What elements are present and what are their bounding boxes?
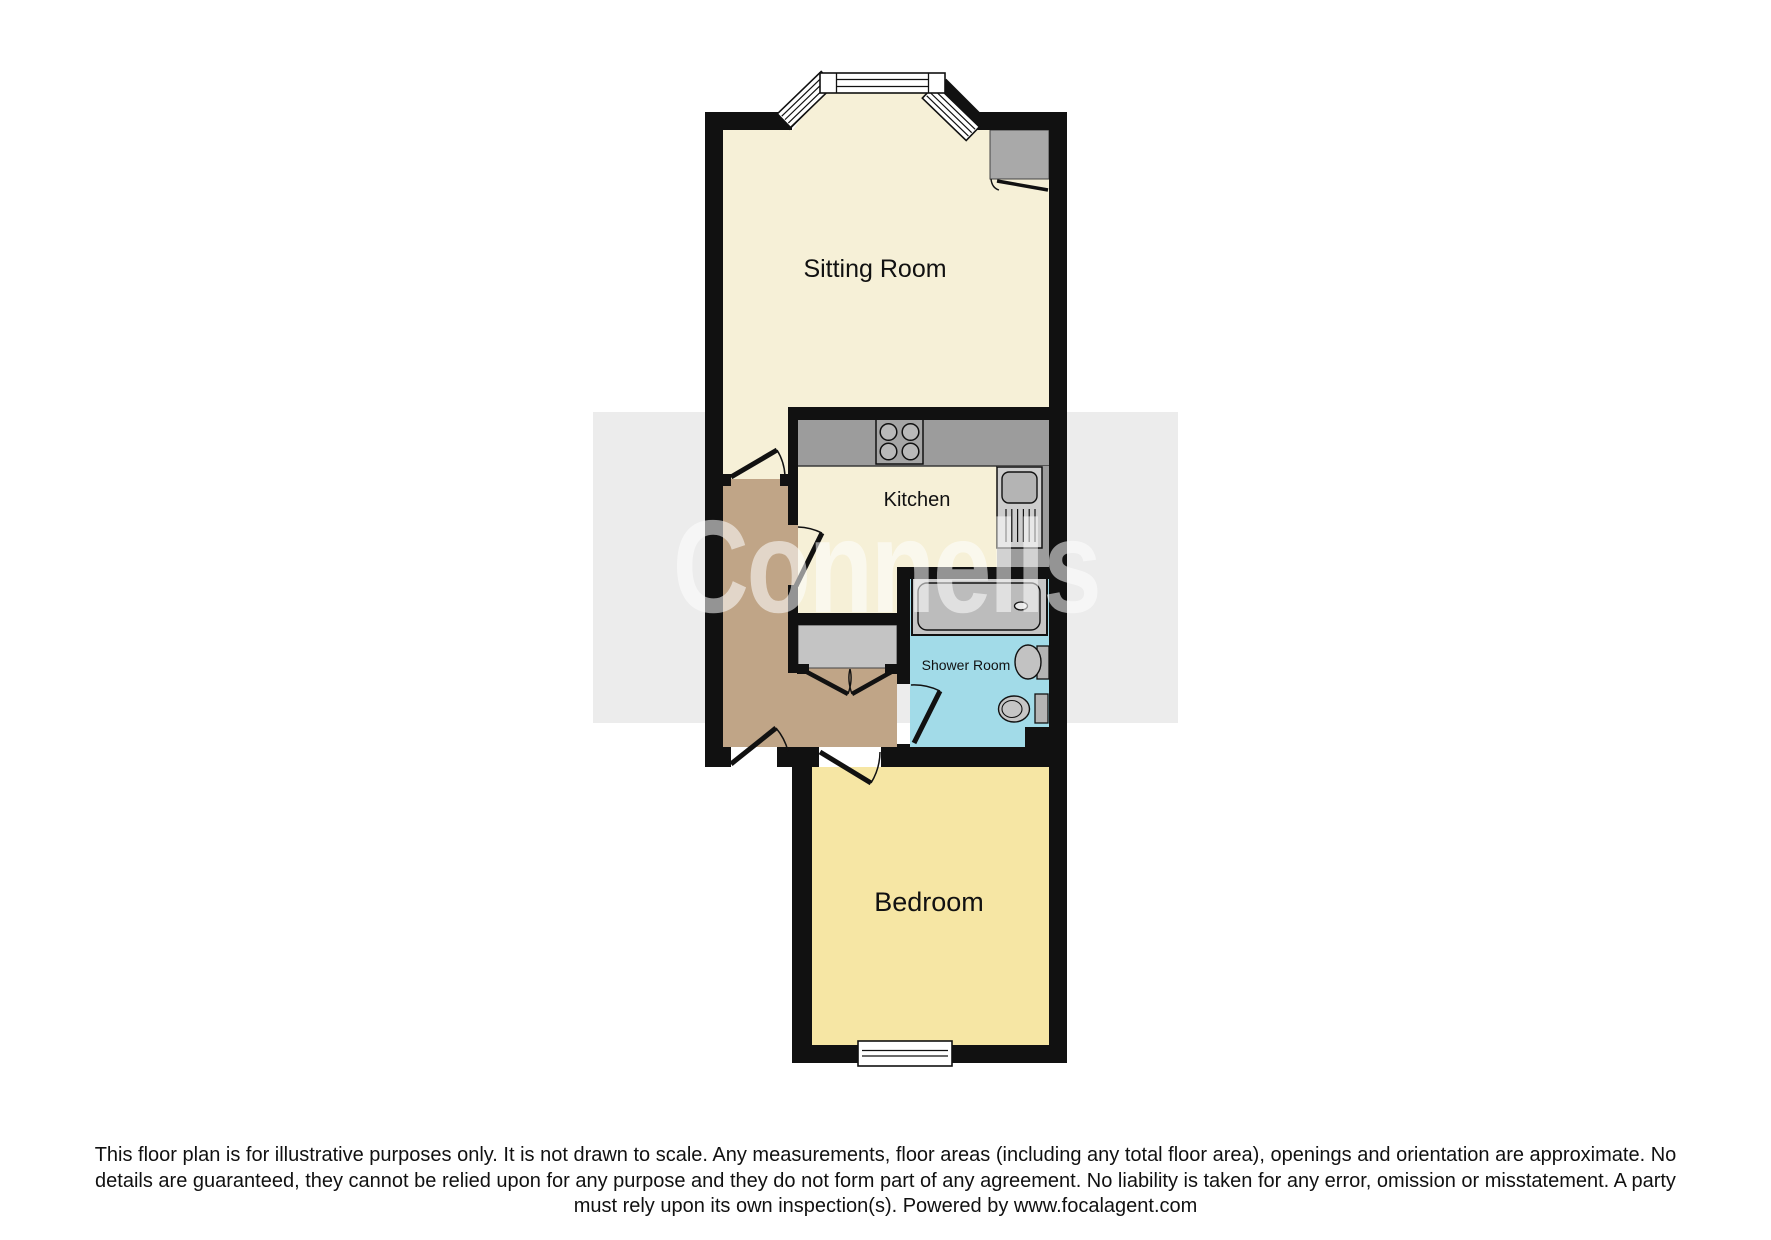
chimney-cupboard <box>990 130 1049 179</box>
bedroom-label: Bedroom <box>874 887 984 917</box>
wall-nub-sitting-door-left <box>721 474 731 486</box>
floorplan-drawing: Sitting Room Kitchen Shower Room Bedroom… <box>0 0 1771 1240</box>
toilet <box>999 694 1049 723</box>
wall-left <box>705 112 723 767</box>
wall-shower-left-lower <box>897 744 910 767</box>
shower-room-label: Shower Room <box>922 657 1011 673</box>
wash-basin <box>1015 645 1049 679</box>
wall-shower-notch <box>1025 727 1049 747</box>
disclaimer: This floor plan is for illustrative purp… <box>0 1143 1771 1220</box>
sitting-room-label: Sitting Room <box>803 255 946 283</box>
watermark-text: Connells <box>673 494 1100 641</box>
floorplan-page: Sitting Room Kitchen Shower Room Bedroom… <box>0 0 1771 1240</box>
disclaimer-line-2: details are guaranteed, they cannot be r… <box>0 1169 1771 1195</box>
bedroom-window <box>858 1041 952 1066</box>
disclaimer-line-1: This floor plan is for illustrative purp… <box>0 1143 1771 1169</box>
wall-hall-bottom-right <box>777 747 793 767</box>
wall-bedroom-left <box>792 747 812 1063</box>
bay-window-centre-pane <box>820 73 945 93</box>
hob <box>876 419 923 464</box>
disclaimer-line-3: must rely upon its own inspection(s). Po… <box>0 1194 1771 1220</box>
wall-hall-bottom-left <box>705 747 731 767</box>
wall-sitting-kitchen <box>788 407 1049 420</box>
